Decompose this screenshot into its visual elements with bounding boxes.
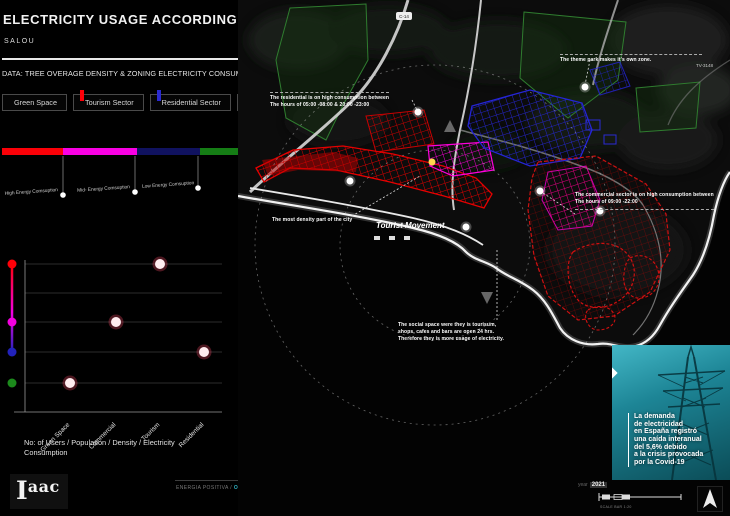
callout-line: en España registró (634, 428, 703, 436)
annotation-line: The hours of 09:00 -22:00 (575, 199, 714, 206)
annotation-line: The theme park makes it's own zone. (560, 57, 702, 64)
annotation-line: The hours of 05:00 -08:00 & 20:00 -23:00 (270, 102, 389, 109)
road-label-tv3148: TV-3148 (696, 63, 714, 68)
diamond-marker (612, 367, 618, 378)
legend-color-tick (80, 90, 84, 101)
title-rule (2, 58, 272, 60)
covid-demand-callout: La demandade electricidaden España regis… (612, 345, 730, 480)
logo-letters: aac (28, 477, 60, 496)
page-subtitle: SALOU (4, 38, 35, 45)
infographic-poster: C-14 TV-3148 The residential is on high … (0, 0, 730, 516)
callout-line: La demanda (634, 413, 703, 421)
legend-label: Green Space (14, 98, 57, 107)
chart-caption: No: of Users / Population / Density / El… (24, 438, 219, 458)
logo-letter: I (16, 476, 28, 505)
annotation-line: The social space were they is tourisum, (398, 322, 504, 329)
north-arrow-icon (697, 486, 723, 512)
legend-label: Tourism Sector (85, 98, 134, 107)
legend-color-tick (157, 90, 161, 101)
annotation-theme-park: The theme park makes it's own zone. (560, 54, 702, 64)
annotation-line: The most density part of the city (272, 217, 352, 224)
legend-box-residential-sector: Residential Sector (150, 94, 231, 111)
annotation-line: Therefore they is more usage of electric… (398, 336, 504, 343)
callout-line: por la Covid-19 (634, 459, 703, 467)
year-label: year (578, 482, 588, 488)
legend-label: Residential Sector (162, 98, 221, 107)
footer-label: ENERGIA POSITIVA / (176, 485, 232, 491)
scale-bar-label: SCALE BAR 1:20 (600, 505, 632, 509)
iaac-logo: Iaac (10, 474, 68, 509)
legend-box-tourism-sector: Tourism Sector (73, 94, 144, 111)
shop-icons (374, 236, 410, 240)
yellow-marker (429, 159, 436, 166)
annotation-line: shops, cafes and bars are open 24 hrs. (398, 329, 504, 336)
callout-line: a la crisis provocada (634, 451, 703, 459)
annotation-line: The commercial sector is on high consump… (575, 192, 714, 199)
scale-bar (598, 492, 682, 502)
callout-line: una caída interanual (634, 436, 703, 444)
annotation-line: The residential is on high consumption b… (270, 95, 389, 102)
year-value: 2021 (590, 482, 607, 488)
annotation-residential: The residential is on high consumption b… (270, 92, 389, 109)
year-stamp: year2021 (578, 482, 607, 488)
annotation-commercial: The commercial sector is on high consump… (575, 192, 714, 210)
annotation-social-space: The social space were they is tourisum, … (398, 322, 504, 342)
svg-text:C-14: C-14 (399, 14, 409, 19)
annotation-density: The most density part of the city (272, 217, 352, 224)
legend-box-green-space: Green Space (2, 94, 67, 111)
tourist-movement-label: Tourist Movement (376, 221, 445, 230)
road-shield: C-14 (396, 12, 412, 20)
